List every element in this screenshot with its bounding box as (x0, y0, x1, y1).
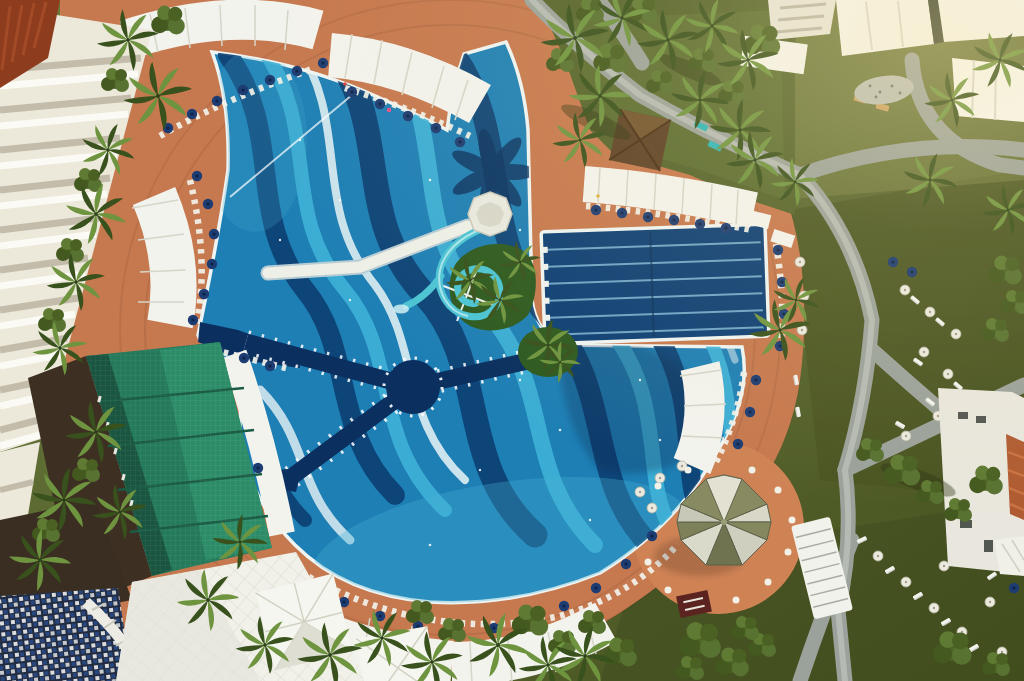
resort-scene (0, 0, 1024, 681)
sunlight-wash (0, 0, 1024, 681)
aerial-photo (0, 0, 1024, 681)
